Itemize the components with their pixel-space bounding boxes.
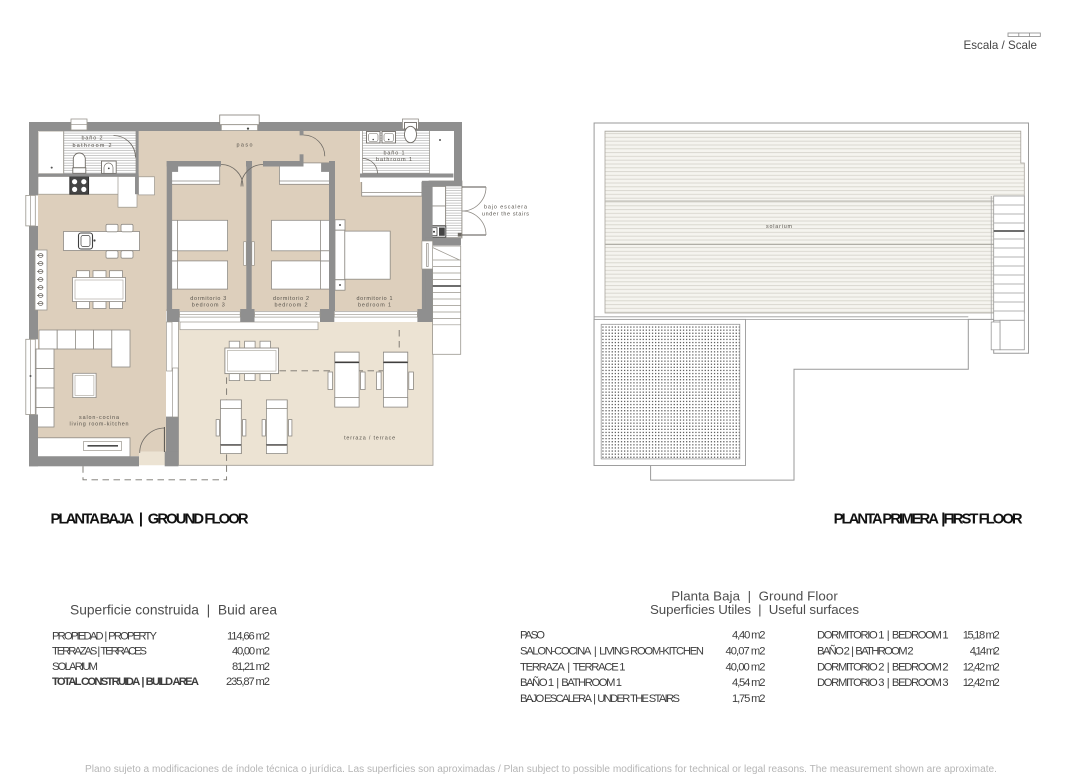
svg-text:PLANTA BAJA | GROUND FLOOR: PLANTA BAJA | GROUND FLOOR (51, 512, 249, 528)
svg-text:DORMITORIO 1 | BEDROOM 1: DORMITORIO 1 | BEDROOM 1 (817, 630, 949, 642)
svg-text:under the stairs: under the stairs (482, 212, 529, 218)
svg-text:4,54 m2: 4,54 m2 (732, 677, 766, 689)
svg-text:Superficies Utiles | Useful: Superficies Utiles | Useful surfaces (650, 602, 859, 617)
svg-text:235,87 m2: 235,87 m2 (226, 676, 270, 688)
svg-text:dormitorio 1: dormitorio 1 (357, 296, 393, 302)
svg-text:salon-cocina: salon-cocina (79, 415, 119, 421)
svg-text:Superficie construida | Buid: Superficie construida | Buid area (70, 603, 277, 618)
svg-text:PLANTA PRIMERA |FIRST FLOOR: PLANTA PRIMERA |FIRST FLOOR (834, 512, 1023, 528)
svg-text:TERRAZA | TERRACE 1: TERRAZA | TERRACE 1 (520, 661, 626, 673)
svg-text:living room-kitchen: living room-kitchen (70, 422, 129, 428)
svg-text:dormitorio 2: dormitorio 2 (273, 296, 309, 302)
svg-text:PASO: PASO (520, 630, 545, 642)
svg-text:BAÑO 1 | BATHROOM 1: BAÑO 1 | BATHROOM 1 (520, 676, 622, 689)
svg-text:PROPIEDAD | PROPERTY: PROPIEDAD | PROPERTY (52, 631, 158, 643)
svg-text:TOTAL CONSTRUIDA | BUILD ARE: TOTAL CONSTRUIDA | BUILD AREA (52, 676, 199, 688)
svg-text:40,00 m2: 40,00 m2 (232, 646, 270, 658)
svg-text:paso: paso (237, 142, 253, 148)
svg-text:SALON-COCINA | LIVING ROOM-K: SALON-COCINA | LIVING ROOM-KITCHEN (520, 645, 704, 657)
svg-text:12,42 m2: 12,42 m2 (963, 661, 1000, 673)
svg-text:DORMITORIO 3 | BEDROOM 3: DORMITORIO 3 | BEDROOM 3 (817, 677, 949, 689)
svg-text:40,07 m2: 40,07 m2 (726, 645, 766, 657)
svg-text:BAÑO 2 | BATHROOM 2: BAÑO 2 | BATHROOM 2 (817, 644, 914, 657)
svg-text:SOLARIUM: SOLARIUM (52, 661, 98, 673)
svg-text:bajo escalera: bajo escalera (484, 205, 527, 211)
svg-text:bathroom 2: bathroom 2 (73, 143, 112, 149)
svg-text:dormitorio 3: dormitorio 3 (190, 296, 226, 302)
svg-text:bedroom 3: bedroom 3 (192, 303, 225, 309)
svg-text:114,66 m2: 114,66 m2 (227, 631, 270, 643)
svg-text:DORMITORIO 2 | BEDROOM 2: DORMITORIO 2 | BEDROOM 2 (817, 661, 949, 673)
svg-text:solarium: solarium (766, 224, 793, 230)
svg-text:baño 1: baño 1 (384, 150, 405, 156)
svg-text:bedroom 1: bedroom 1 (358, 303, 391, 309)
svg-text:15,18 m2: 15,18 m2 (963, 630, 1000, 642)
svg-text:4,40 m2: 4,40 m2 (732, 630, 766, 642)
svg-text:81,21 m2: 81,21 m2 (232, 661, 270, 673)
svg-text:bathroom 1: bathroom 1 (376, 157, 412, 163)
svg-text:TERRAZAS | TERRACES: TERRAZAS | TERRACES (52, 646, 147, 658)
svg-text:40,00 m2: 40,00 m2 (726, 661, 766, 673)
svg-text:12,42 m2: 12,42 m2 (963, 677, 1000, 689)
svg-text:4,14 m2: 4,14 m2 (970, 645, 1000, 657)
svg-text:Escala / Scale: Escala / Scale (964, 39, 1037, 52)
svg-text:bedroom 2: bedroom 2 (275, 303, 308, 309)
svg-text:1,75 m2: 1,75 m2 (732, 693, 766, 705)
svg-text:Plano sujeto a modificaciones: Plano sujeto a modificaciones de índole … (85, 764, 997, 775)
svg-text:terraza / terrace: terraza / terrace (344, 436, 395, 442)
svg-text:baño 2: baño 2 (82, 136, 103, 142)
svg-text:BAJO ESCALERA | UNDER THE ST: BAJO ESCALERA | UNDER THE STAIRS (520, 693, 680, 705)
